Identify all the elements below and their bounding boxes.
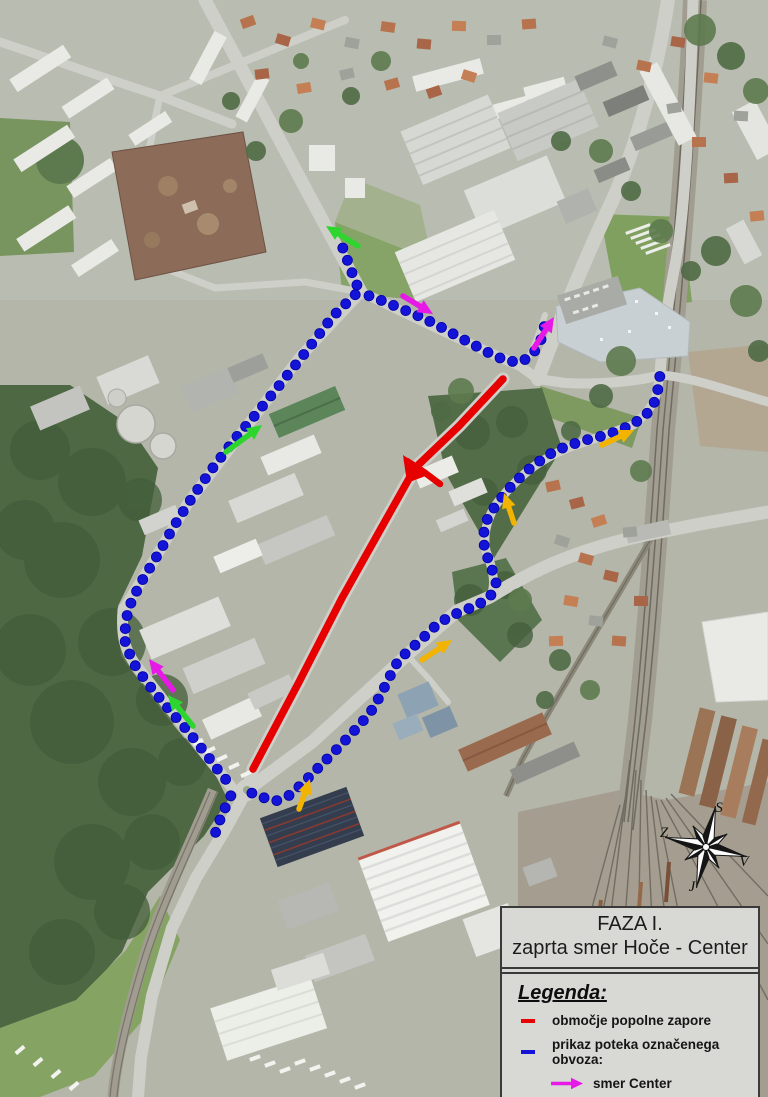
detour-line-swatch xyxy=(521,1050,535,1054)
closure-line-swatch xyxy=(521,1019,535,1023)
legend-heading: Legenda: xyxy=(518,982,752,1005)
compass-west-label: Z xyxy=(660,825,669,841)
legend-item-label: smer Center xyxy=(593,1076,672,1091)
detour-map-page: S Z V J FAZA I. zaprta smer Hoče - Cente… xyxy=(0,0,768,1097)
center-arrow-icon xyxy=(550,1077,584,1090)
legend-item-closure: območje popolne zapore xyxy=(518,1013,752,1028)
legend-item-label: prikaz poteka označenega obvoza: xyxy=(552,1037,752,1067)
legend-item-label: območje popolne zapore xyxy=(552,1013,711,1028)
compass-north-label: S xyxy=(715,800,723,816)
legend-item-center: smer Center xyxy=(550,1076,752,1091)
phase-subtitle: zaprta smer Hoče - Center xyxy=(502,936,758,960)
legend-item-detour: prikaz poteka označenega obvoza: xyxy=(518,1037,752,1067)
storage-tank xyxy=(117,405,155,443)
phase-title-box: FAZA I. zaprta smer Hoče - Center xyxy=(502,908,758,969)
map-info-box: FAZA I. zaprta smer Hoče - Center Legend… xyxy=(500,906,760,1097)
phase-title: FAZA I. xyxy=(502,912,758,936)
legend: Legenda: območje popolne zapore prikaz p… xyxy=(502,972,758,1097)
